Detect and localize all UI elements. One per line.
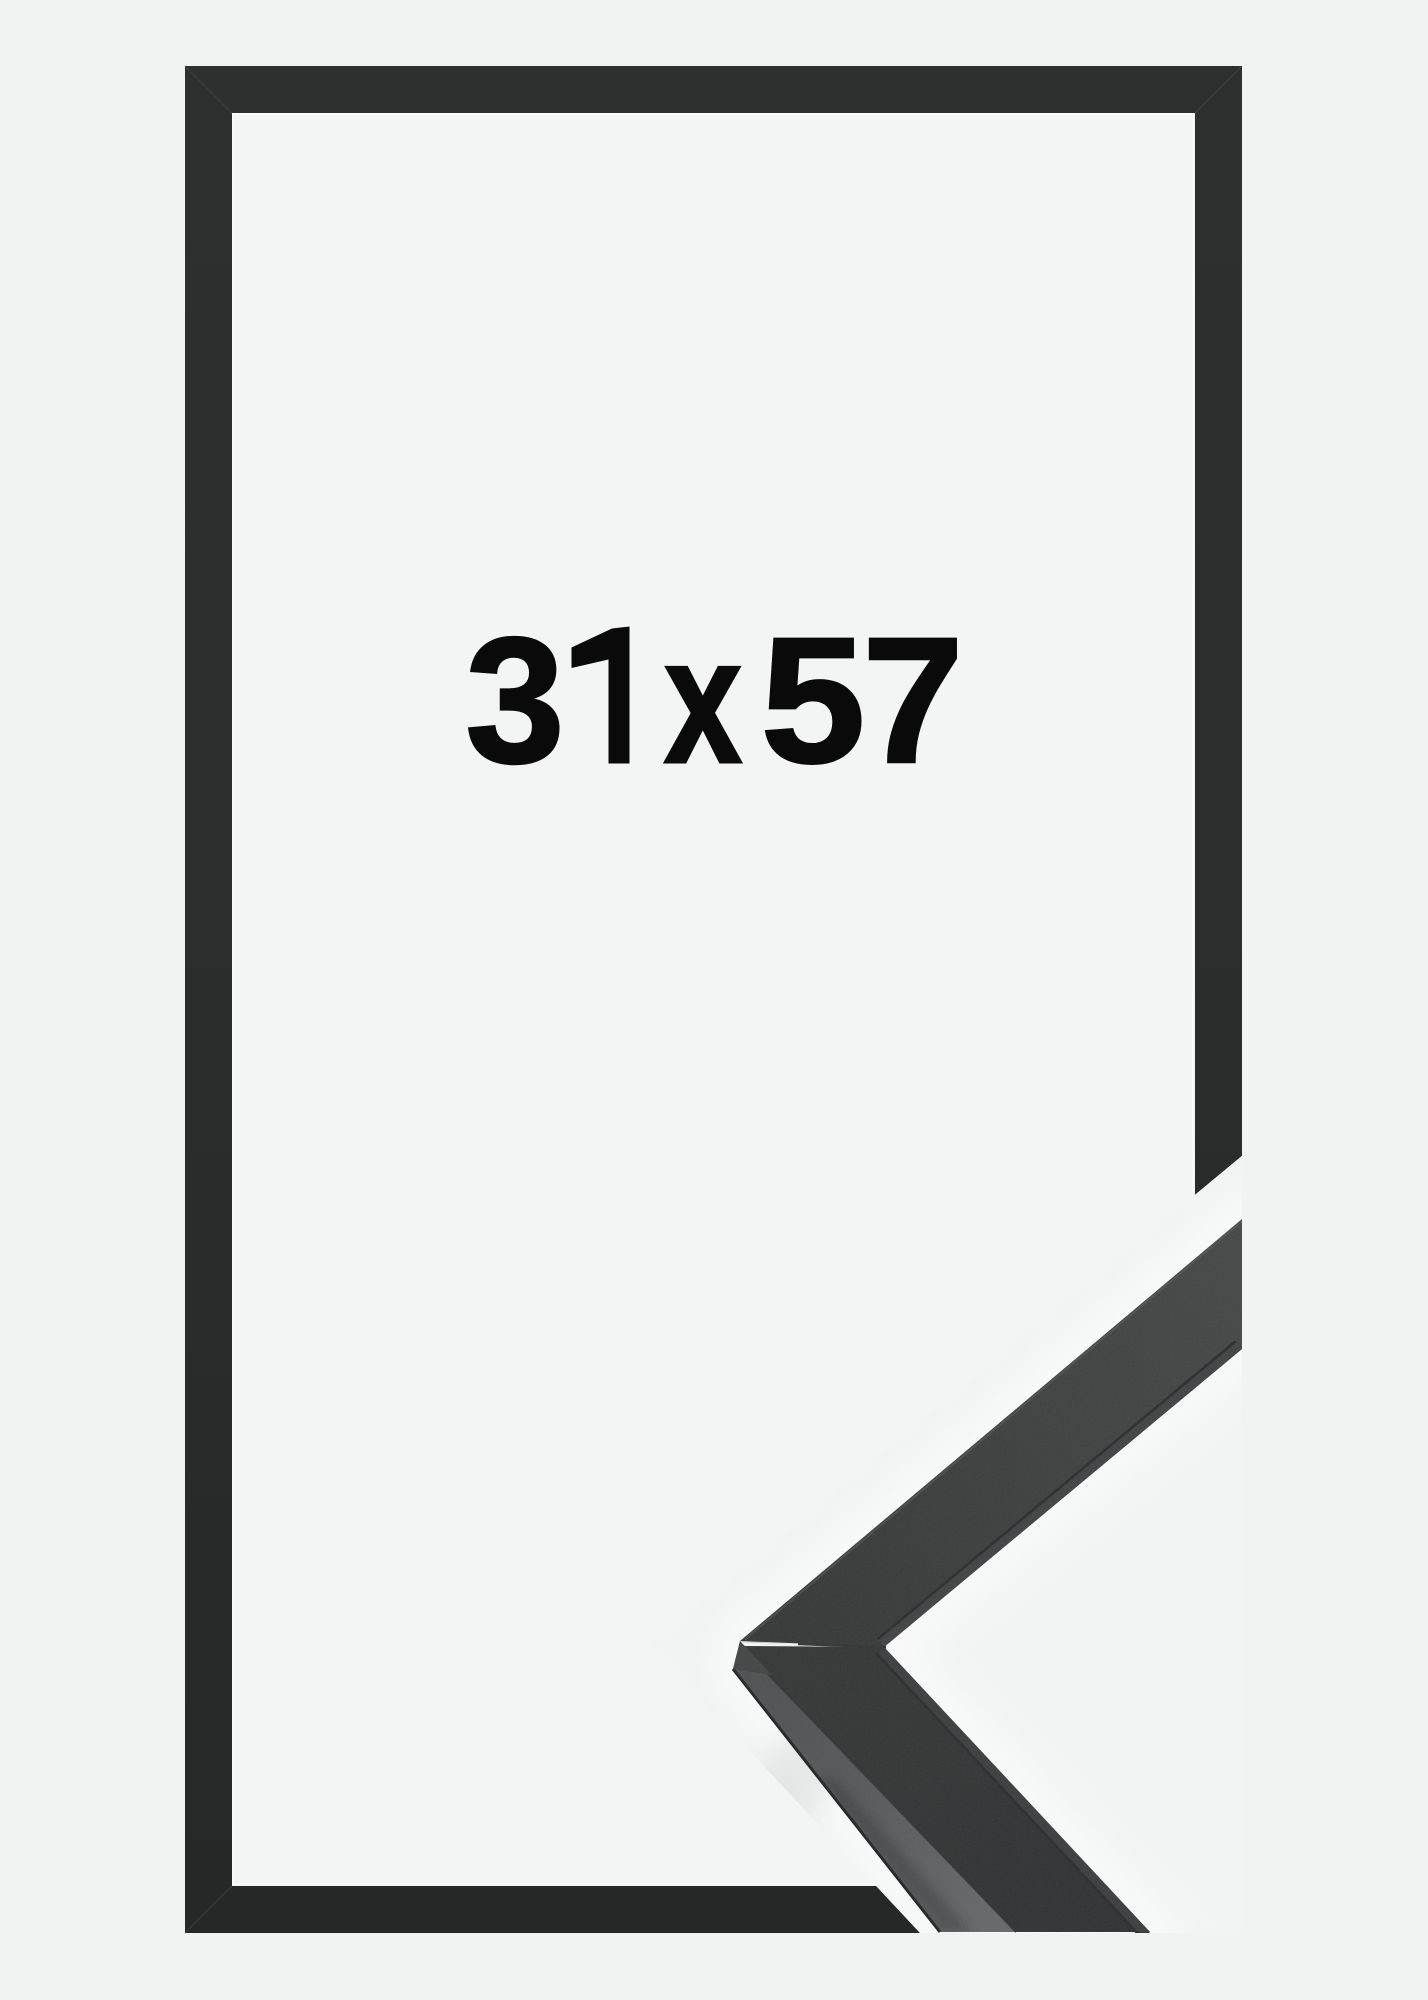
svg-text:x: x <box>664 601 742 801</box>
svg-text:3: 3 <box>465 600 565 800</box>
svg-text:7: 7 <box>862 601 964 801</box>
svg-text:5: 5 <box>760 600 865 800</box>
